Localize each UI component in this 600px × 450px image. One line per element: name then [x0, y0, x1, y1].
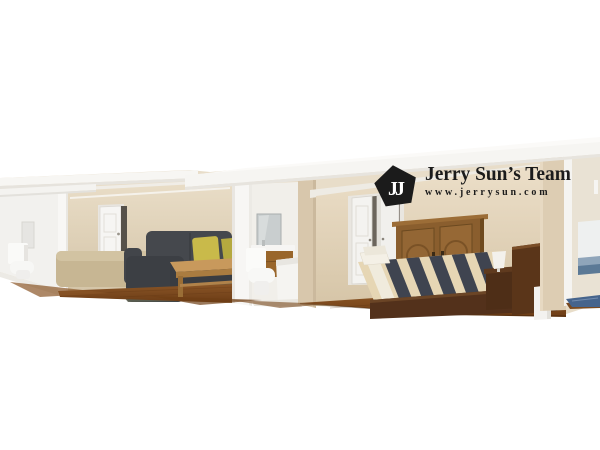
rendered-interior-image: JJ Jerry Sun’s Team www.jerrysun.com	[0, 0, 600, 450]
logo-text: Jerry Sun’s Team www.jerrysun.com	[425, 163, 575, 199]
small-bathroom	[0, 192, 58, 295]
door-handle-3	[594, 180, 598, 194]
vanity-mirror	[257, 214, 281, 247]
door-handle	[369, 239, 372, 242]
white-furniture	[578, 220, 600, 260]
pentagon-logo-icon: JJ	[372, 164, 420, 210]
house-cutaway-scene	[0, 0, 600, 450]
door-knob	[117, 233, 120, 236]
cut-wall-2	[232, 180, 252, 306]
faucet	[262, 240, 265, 246]
watermark-logo: JJ Jerry Sun’s Team www.jerrysun.com	[372, 163, 575, 210]
cut-wall-3	[298, 180, 316, 308]
living-room	[56, 182, 252, 303]
door-handle-2	[382, 238, 385, 241]
pillow-2	[363, 246, 387, 256]
logo-website: www.jerrysun.com	[425, 187, 575, 199]
logo-title: Jerry Sun’s Team	[425, 163, 571, 185]
main-bathroom	[246, 182, 303, 307]
